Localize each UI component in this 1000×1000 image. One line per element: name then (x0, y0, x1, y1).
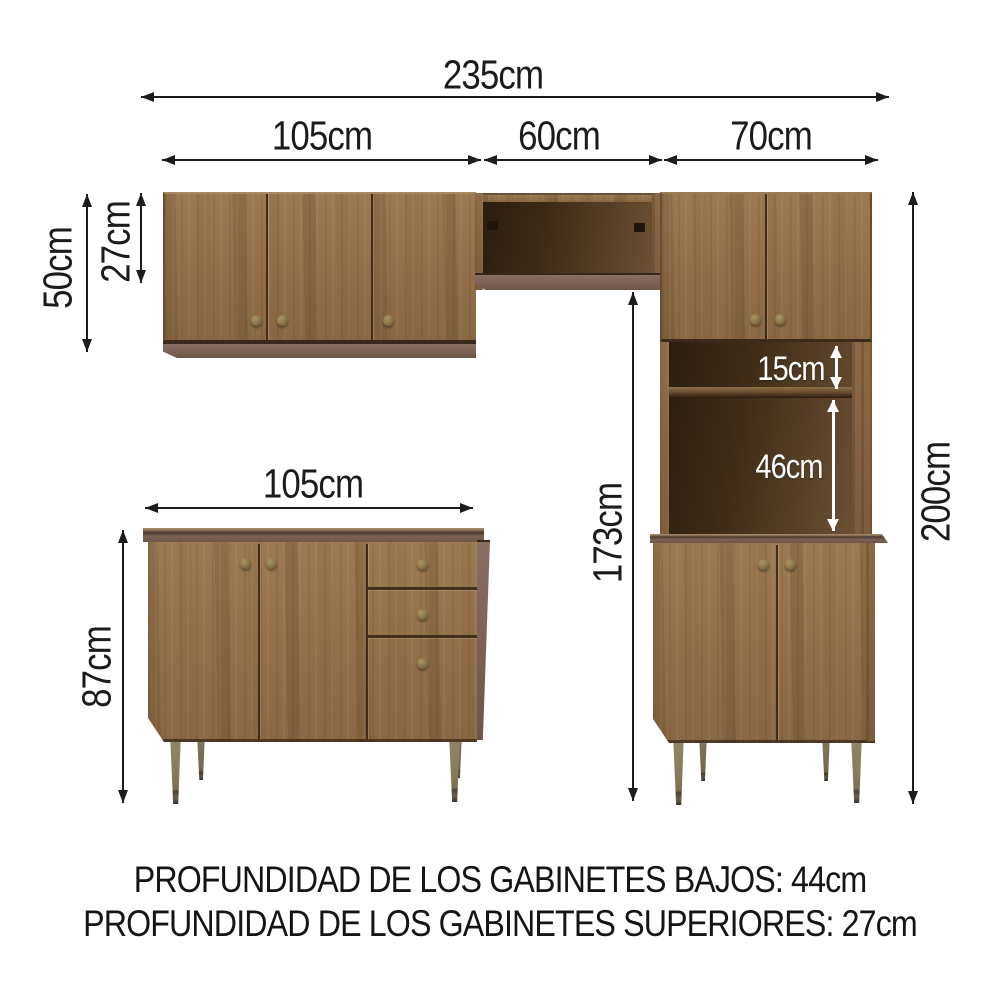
arrow-head-down (908, 791, 918, 804)
drawer-knob (417, 658, 428, 669)
wall-cabinet-body (163, 192, 476, 342)
arrow-head-left (664, 155, 677, 165)
base-countertop (143, 528, 484, 542)
door-knob (251, 315, 262, 326)
shelf-bottom-panel (475, 273, 662, 290)
arrow-line (632, 292, 634, 801)
cabinet-leg (195, 742, 207, 780)
wall-cabinet-bottom-panel (163, 342, 476, 358)
arrow-head-down (118, 790, 128, 803)
arrow-head-up (118, 530, 128, 543)
cabinet-leg (820, 743, 832, 781)
arrow-head-down (628, 788, 638, 801)
diagram-canvas: 235cm 105cm 60cm 70cm 50cm 27cm (0, 0, 1000, 1000)
door-gap (776, 545, 778, 741)
arrow-head-down (82, 339, 92, 352)
door-knob (383, 315, 394, 326)
footer-depth-lower: PROFUNDIDAD DE LOS GABINETES BAJOS: 44cm (65, 858, 935, 902)
drawer-column-gap (366, 544, 368, 740)
base-body (148, 542, 477, 742)
dim-label-corner-shelf-width: 60cm (518, 116, 600, 157)
door-knob (266, 558, 277, 569)
dim-label-hutch-gap-large: 46cm (755, 450, 822, 484)
door-knob (750, 314, 761, 325)
door-knob (277, 315, 288, 326)
cabinet-leg (670, 743, 687, 805)
arrow-head-right (649, 155, 662, 165)
hutch-right-panel (852, 342, 872, 535)
arrow-head-right (876, 92, 889, 102)
cabinet-leg (697, 743, 709, 781)
shelf-top-bar (475, 193, 662, 202)
door-knob (758, 559, 769, 570)
arrow-head-right (460, 503, 473, 513)
arrow-head-up (830, 346, 842, 358)
dim-label-upper-cabinet-height: 50cm (38, 227, 79, 309)
dim-label-upper-opening-height: 27cm (96, 201, 137, 283)
dim-label-base-cabinet-height: 87cm (77, 626, 118, 708)
arrow-head-left (162, 155, 175, 165)
drawer-knob (417, 559, 428, 570)
arrow-line (832, 400, 835, 531)
dim-label-base-cabinet-width: 105cm (263, 464, 363, 505)
arrow-head-up (827, 400, 839, 412)
hutch-shelf (669, 387, 852, 398)
tall-base-top (650, 534, 888, 543)
base-right-side (477, 540, 490, 740)
dim-label-tall-cabinet-width: 70cm (730, 116, 812, 157)
drawer-divider (368, 587, 477, 590)
door-gap (765, 194, 767, 340)
drawer-divider (368, 635, 477, 638)
dim-label-hutch-gap-small: 15cm (757, 352, 824, 386)
hutch-left-stile (660, 342, 669, 535)
door-knob (785, 559, 796, 570)
cabinet-leg (848, 743, 865, 803)
arrow-line (484, 159, 662, 161)
tall-base-side (866, 543, 875, 741)
arrow-head-down (827, 519, 839, 531)
dim-label-total-height: 200cm (916, 442, 957, 542)
door-knob (240, 558, 251, 569)
arrow-head-up (82, 194, 92, 207)
arrow-head-left (484, 155, 497, 165)
arrow-head-right (468, 155, 481, 165)
door-gap (258, 544, 260, 740)
arrow-line (664, 159, 878, 161)
arrow-line (86, 194, 88, 352)
arrow-head-down (830, 377, 842, 389)
arrow-line (122, 530, 124, 803)
door-gap (371, 194, 373, 340)
arrow-line (162, 159, 481, 161)
dim-label-open-height: 173cm (588, 483, 629, 583)
tall-base-body (653, 543, 875, 743)
arrow-line (145, 507, 473, 509)
cabinet-leg (167, 742, 184, 804)
arrow-head-left (141, 92, 154, 102)
arrow-head-up (908, 192, 918, 205)
wall-mount-bracket (634, 223, 645, 232)
wall-mount-bracket (487, 221, 498, 230)
door-gap (266, 194, 268, 340)
dim-label-upper-left-width: 105cm (272, 116, 372, 157)
arrow-head-right (865, 155, 878, 165)
footer-depth-upper: PROFUNDIDAD DE LOS GABINETES SUPERIORES:… (65, 902, 935, 946)
drawer-knob (417, 609, 428, 620)
arrow-head-up (628, 292, 638, 305)
shelf-interior (483, 202, 652, 273)
arrow-head-left (145, 503, 158, 513)
door-knob (775, 314, 786, 325)
dim-label-total-width: 235cm (443, 55, 543, 96)
